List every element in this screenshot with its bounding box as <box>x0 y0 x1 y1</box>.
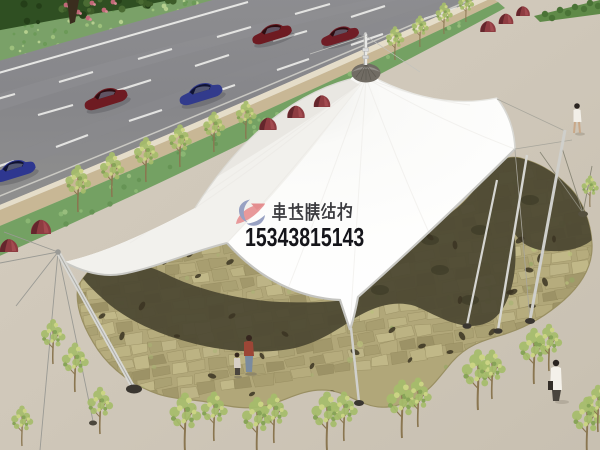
svg-text:15343815143: 15343815143 <box>245 222 364 251</box>
